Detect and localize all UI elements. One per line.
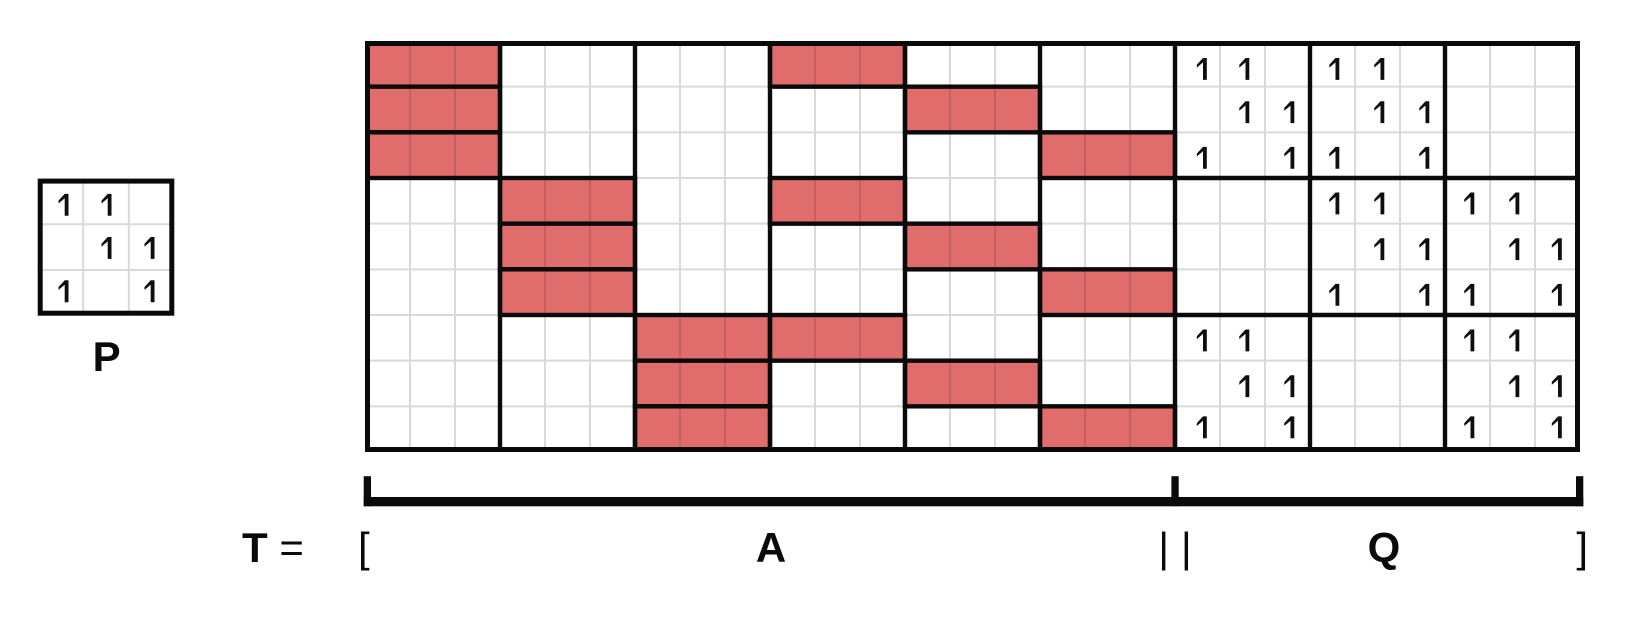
svg-text:Q: Q (1368, 524, 1401, 571)
svg-text:P: P (93, 333, 121, 380)
svg-text:| |: | | (1158, 524, 1192, 571)
svg-text:A: A (756, 524, 786, 571)
svg-text:]: ] (1576, 524, 1588, 571)
svg-text:T =: T = (242, 524, 304, 571)
svg-text:[: [ (358, 524, 370, 571)
